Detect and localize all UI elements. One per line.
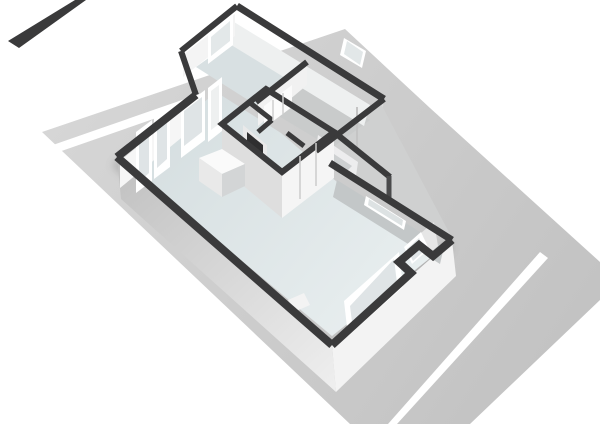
floorplan-scene: [8, 0, 600, 424]
floorplan-viewport: [0, 0, 600, 424]
floorplan-3d-canvas[interactable]: [0, 0, 600, 424]
neighbor-wall-top: [8, 0, 86, 48]
nw-door-panel: [211, 85, 219, 130]
